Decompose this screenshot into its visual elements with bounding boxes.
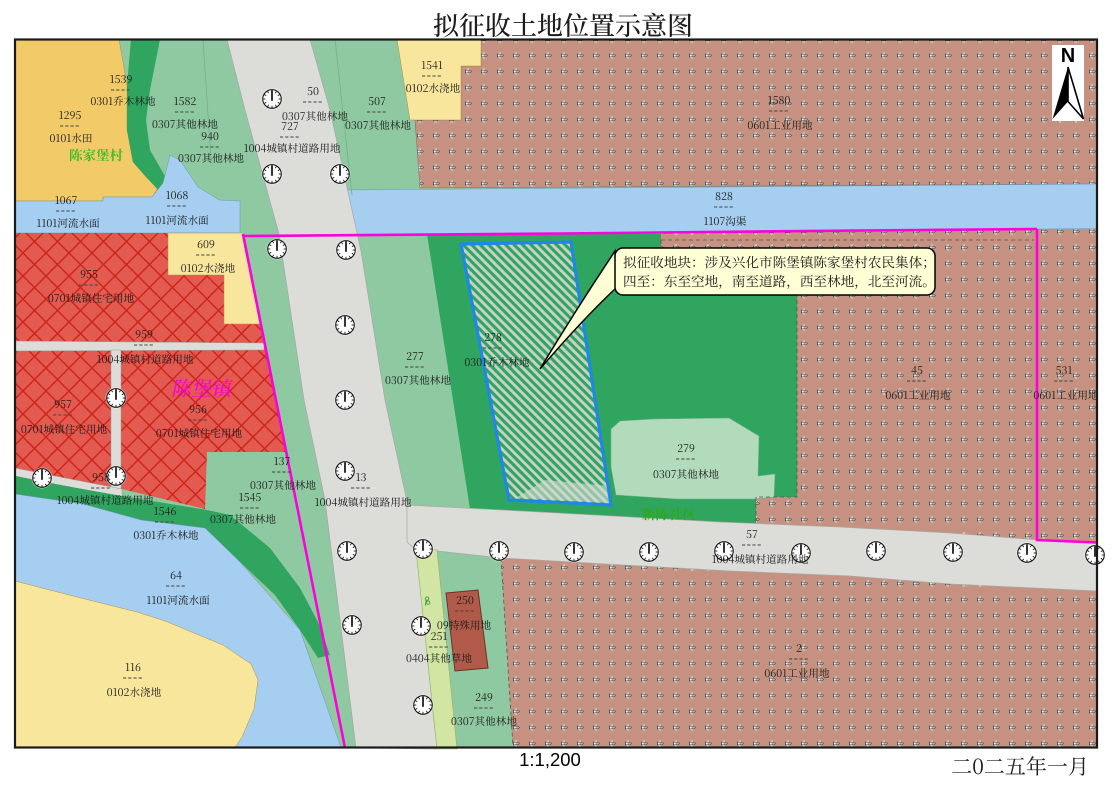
svg-text:1:1,200: 1:1,200 xyxy=(519,749,581,770)
svg-text:N: N xyxy=(1061,45,1075,67)
